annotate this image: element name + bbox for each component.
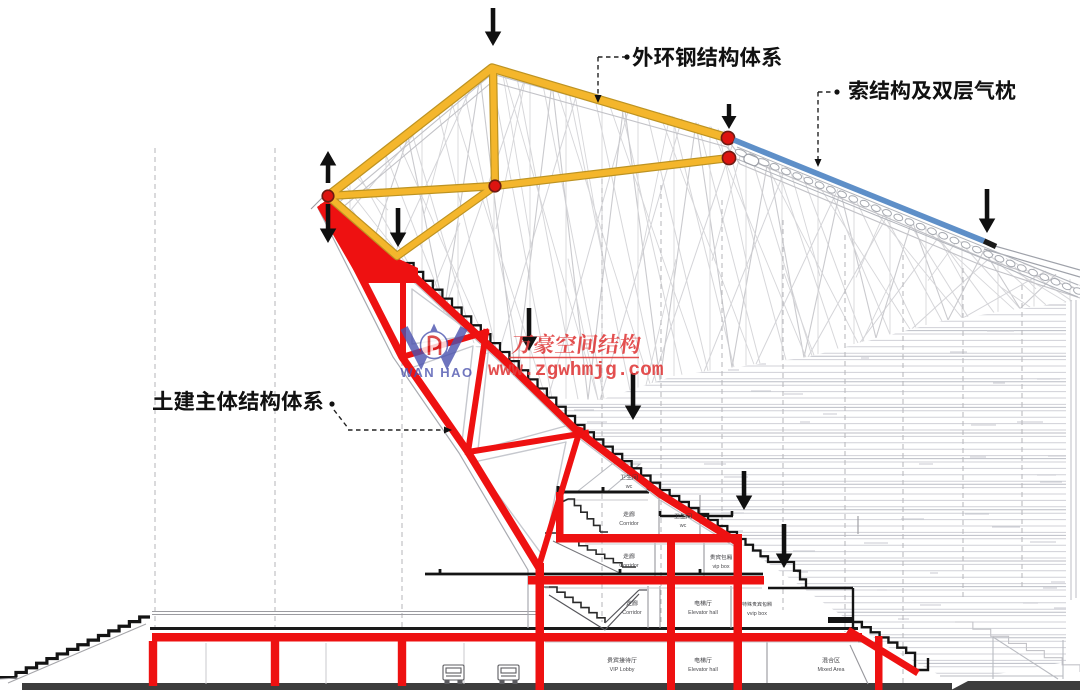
svg-text:Elevator hall: Elevator hall [688, 667, 718, 673]
svg-text:Mixed Area: Mixed Area [818, 667, 845, 673]
svg-text:Corridor: Corridor [622, 610, 642, 616]
svg-text:wc: wc [679, 523, 687, 529]
svg-text:vip box: vip box [712, 564, 729, 570]
svg-text:Corridor: Corridor [619, 563, 639, 569]
svg-text:VIP Lobby: VIP Lobby [610, 667, 635, 673]
svg-text:Elevator hall: Elevator hall [688, 610, 718, 616]
svg-text:vvip box: vvip box [747, 611, 767, 617]
svg-text:WAN HAO: WAN HAO [400, 365, 473, 380]
svg-text:wc: wc [625, 484, 633, 490]
svg-text:www.zgwhmjg.com: www.zgwhmjg.com [488, 359, 664, 381]
svg-text:Corridor: Corridor [619, 521, 639, 527]
